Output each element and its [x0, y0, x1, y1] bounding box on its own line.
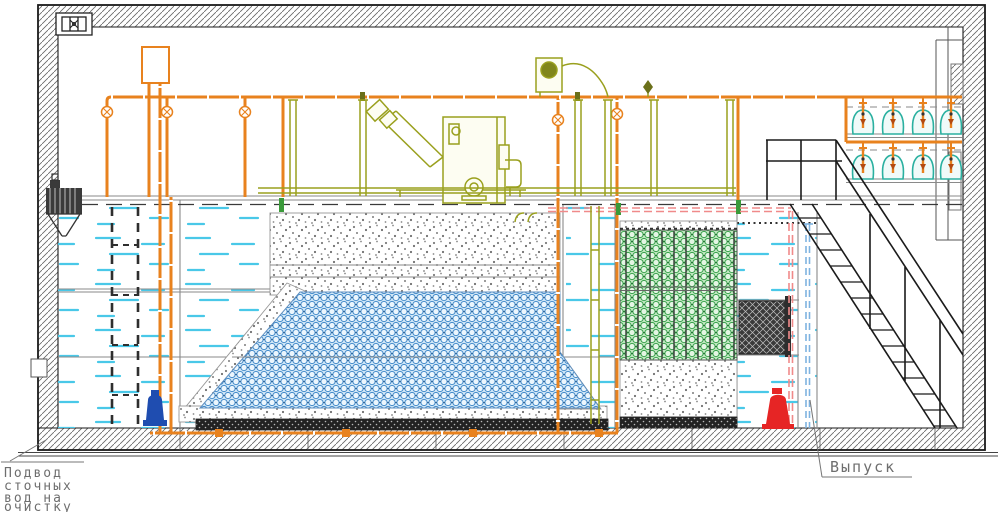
gravel-below-biofilter	[620, 360, 737, 417]
top-wall	[38, 5, 985, 27]
treatment-plant-section-drawing: Подвод сточных вод на очистку Выпуск	[0, 0, 1000, 512]
gravel-above-biofilter	[620, 221, 737, 230]
inlet-pipe-sleeve	[31, 359, 47, 377]
inlet-label-line4: очистку	[4, 500, 73, 512]
biofilter-media-block	[620, 230, 737, 360]
ventilation-unit-icon	[56, 13, 92, 35]
dosing-tank	[142, 47, 169, 83]
outlet-shaft-water	[799, 212, 817, 428]
sorption-filter-block	[739, 296, 791, 357]
drawing-svg: Подвод сточных вод на очистку Выпуск	[0, 0, 1000, 512]
right-wall	[963, 5, 985, 450]
outlet-label-text: Выпуск	[830, 458, 896, 476]
gravel-layer-top	[270, 213, 560, 295]
left-wall	[38, 5, 58, 450]
